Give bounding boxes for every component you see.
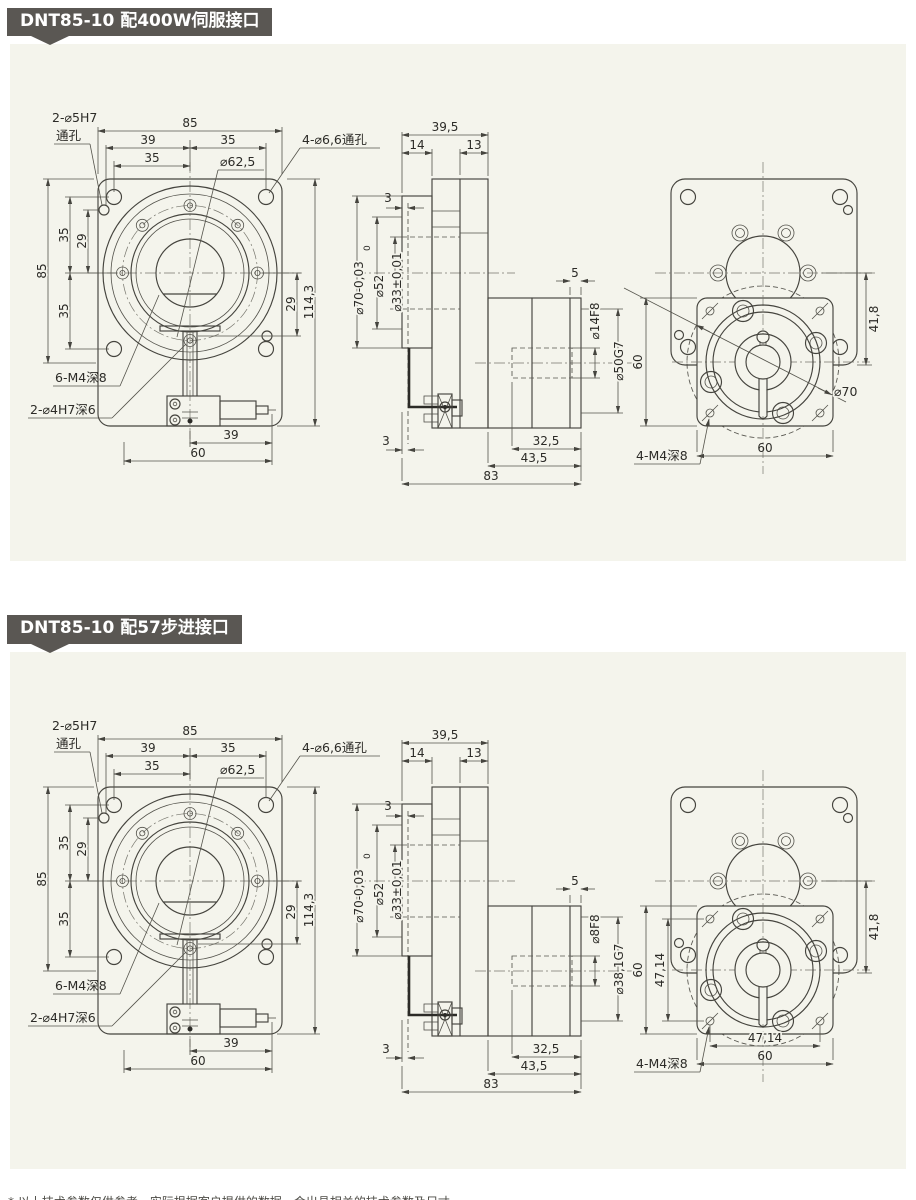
front-view <box>88 770 302 1052</box>
dim-front-right-1143: 114,3 <box>302 285 316 319</box>
dim-side-spigot-dia: ⌀52 <box>372 275 386 298</box>
front-view <box>88 162 302 444</box>
dim-front-left-29: 29 <box>75 841 89 856</box>
side-view-dimensions: 39,5 14 13 3 ⌀70-0,03 0 ⌀52 ⌀33±0,01 5 ⌀… <box>352 120 626 484</box>
dim-rear-offset-418: 41,8 <box>867 306 881 333</box>
dim-rear-offset-418: 41,8 <box>867 913 881 940</box>
dim-front-bottom-39: 39 <box>223 1036 238 1050</box>
dim-front-right-29: 29 <box>284 904 298 919</box>
label-pin-holes-type: 通孔 <box>56 736 82 751</box>
label-dowel-holes: 2-⌀4H7深6 <box>30 1010 96 1025</box>
dim-front-bottom-39: 39 <box>223 428 238 442</box>
dim-side-motor-bore: ⌀14F8 <box>588 303 602 340</box>
dim-side-boss-tol: 0 <box>363 853 373 859</box>
dim-rear-pitch-h: 47,14 <box>748 1031 782 1045</box>
dim-front-right-1143: 114,3 <box>302 893 316 927</box>
label-bolt-circle: ⌀62,5 <box>220 154 255 169</box>
footnote: * 以上技术参数仅供参考，实际根据客户提供的数据，会出具相关的技术参数及尺寸。 <box>8 1193 916 1200</box>
label-dowel-holes: 2-⌀4H7深6 <box>30 402 96 417</box>
dim-front-top-39: 39 <box>140 133 155 147</box>
dim-front-left-29: 29 <box>75 234 89 249</box>
label-corner-holes: 4-⌀6,6通孔 <box>302 740 367 755</box>
dim-side-step-top: 3 <box>384 799 392 813</box>
rear-view <box>655 162 878 474</box>
section-badge-label: DNT85-10 配400W伺服接口 <box>20 11 259 31</box>
dim-front-left-35u: 35 <box>57 228 71 243</box>
dim-side-total-len: 83 <box>483 1077 498 1091</box>
dim-side-depth: 39,5 <box>432 120 459 134</box>
dim-side-motor-bore: ⌀8F8 <box>588 914 602 943</box>
section-badge-label: DNT85-10 配57步进接口 <box>20 618 229 638</box>
dim-front-left-85: 85 <box>35 871 49 886</box>
side-encoder-detail <box>424 394 462 428</box>
dim-front-top-35l: 35 <box>144 759 159 773</box>
dim-side-rear-len: 32,5 <box>533 1042 560 1056</box>
front-encoder-assembly <box>160 326 276 426</box>
sections-root: DNT85-10 配400W伺服接口 <box>0 0 916 1169</box>
dim-side-motor-len: 43,5 <box>521 451 548 465</box>
label-corner-holes: 4-⌀6,6通孔 <box>302 132 367 147</box>
dim-front-left-35d: 35 <box>57 304 71 319</box>
drawing-panel: 85 39 35 35 85 35 29 35 29 114,3 39 60 2… <box>10 44 906 561</box>
dim-front-top-85: 85 <box>182 116 197 130</box>
section-badge: DNT85-10 配57步进接口 <box>7 615 242 643</box>
drawing-panel: 85 39 35 35 85 35 29 35 29 114,3 39 60 2… <box>10 652 906 1169</box>
dim-side-shaft-step: 5 <box>571 266 579 280</box>
section-badge: DNT85-10 配400W伺服接口 <box>7 8 272 36</box>
label-bolt-circle: ⌀62,5 <box>220 762 255 777</box>
dim-rear-pitch-v: 47,14 <box>653 953 667 987</box>
dim-front-right-29: 29 <box>284 297 298 312</box>
drawing-section: DNT85-10 配400W伺服接口 <box>0 0 916 561</box>
drawing-section: DNT85-10 配57步进接口 <box>0 607 916 1168</box>
catalog-page: DNT85-10 配400W伺服接口 <box>0 0 916 1200</box>
side-encoder-detail <box>424 1002 462 1036</box>
dim-side-bore-dia: ⌀33±0,01 <box>390 253 404 312</box>
dim-side-spigot-dia: ⌀52 <box>372 883 386 906</box>
dim-side-rear: 13 <box>466 746 481 760</box>
dim-rear-height-60: 60 <box>631 962 645 977</box>
dim-side-rear: 13 <box>466 138 481 152</box>
side-view-dimensions: 39,5 14 13 3 ⌀70-0,03 0 ⌀52 ⌀33±0,01 5 ⌀… <box>352 728 626 1092</box>
label-pin-holes-qty: 2-⌀5H7 <box>52 718 97 733</box>
dim-side-front: 14 <box>409 746 424 760</box>
dim-rear-height-60: 60 <box>631 355 645 370</box>
dim-front-left-85: 85 <box>35 264 49 279</box>
dim-side-step-top: 3 <box>384 191 392 205</box>
dim-side-rear-len: 32,5 <box>533 434 560 448</box>
dim-side-pilot-dia: ⌀38,1G7 <box>612 943 626 994</box>
dim-side-boss-dia: ⌀70-0,03 <box>352 869 366 923</box>
dim-rear-width-60: 60 <box>757 441 772 455</box>
dim-side-bore-dia: ⌀33±0,01 <box>390 860 404 919</box>
dim-front-top-35r: 35 <box>220 133 235 147</box>
front-view-dimensions: 85 39 35 35 85 35 29 35 29 114,3 39 60 2… <box>28 718 380 1073</box>
label-tapped-holes: 6-M4深8 <box>55 370 107 385</box>
dim-side-motor-len: 43,5 <box>521 1059 548 1073</box>
label-rear-screws: 4-M4深8 <box>636 1056 688 1071</box>
dim-front-left-35d: 35 <box>57 911 71 926</box>
dim-side-front: 14 <box>409 138 424 152</box>
dim-side-boss-tol: 0 <box>363 245 373 251</box>
dim-side-step-bottom: 3 <box>382 1042 390 1056</box>
front-encoder-assembly <box>160 934 276 1034</box>
dim-rear-width-60: 60 <box>757 1049 772 1063</box>
label-pin-holes-qty: 2-⌀5H7 <box>52 110 97 125</box>
dim-front-left-35u: 35 <box>57 835 71 850</box>
dim-side-depth: 39,5 <box>432 728 459 742</box>
dim-front-top-35r: 35 <box>220 741 235 755</box>
dim-front-top-39: 39 <box>140 741 155 755</box>
dim-side-boss-dia: ⌀70-0,03 <box>352 262 366 316</box>
label-boss-dia: ⌀70 <box>834 384 857 399</box>
dim-side-pilot-dia: ⌀50G7 <box>612 342 626 381</box>
dim-front-bottom-60: 60 <box>190 1054 205 1068</box>
label-pin-holes-type: 通孔 <box>56 128 82 143</box>
label-rear-screws: 4-M4深8 <box>636 448 688 463</box>
dim-front-top-35l: 35 <box>144 151 159 165</box>
technical-drawing: 85 39 35 35 85 35 29 35 29 114,3 39 60 2… <box>10 44 906 561</box>
dim-front-bottom-60: 60 <box>190 446 205 460</box>
dim-front-top-85: 85 <box>182 724 197 738</box>
label-tapped-holes: 6-M4深8 <box>55 978 107 993</box>
dim-side-shaft-step: 5 <box>571 874 579 888</box>
dim-side-step-bottom: 3 <box>382 434 390 448</box>
technical-drawing: 85 39 35 35 85 35 29 35 29 114,3 39 60 2… <box>10 652 906 1169</box>
front-view-dimensions: 85 39 35 35 85 35 29 35 29 114,3 39 60 2… <box>28 110 380 465</box>
dim-side-total-len: 83 <box>483 469 498 483</box>
